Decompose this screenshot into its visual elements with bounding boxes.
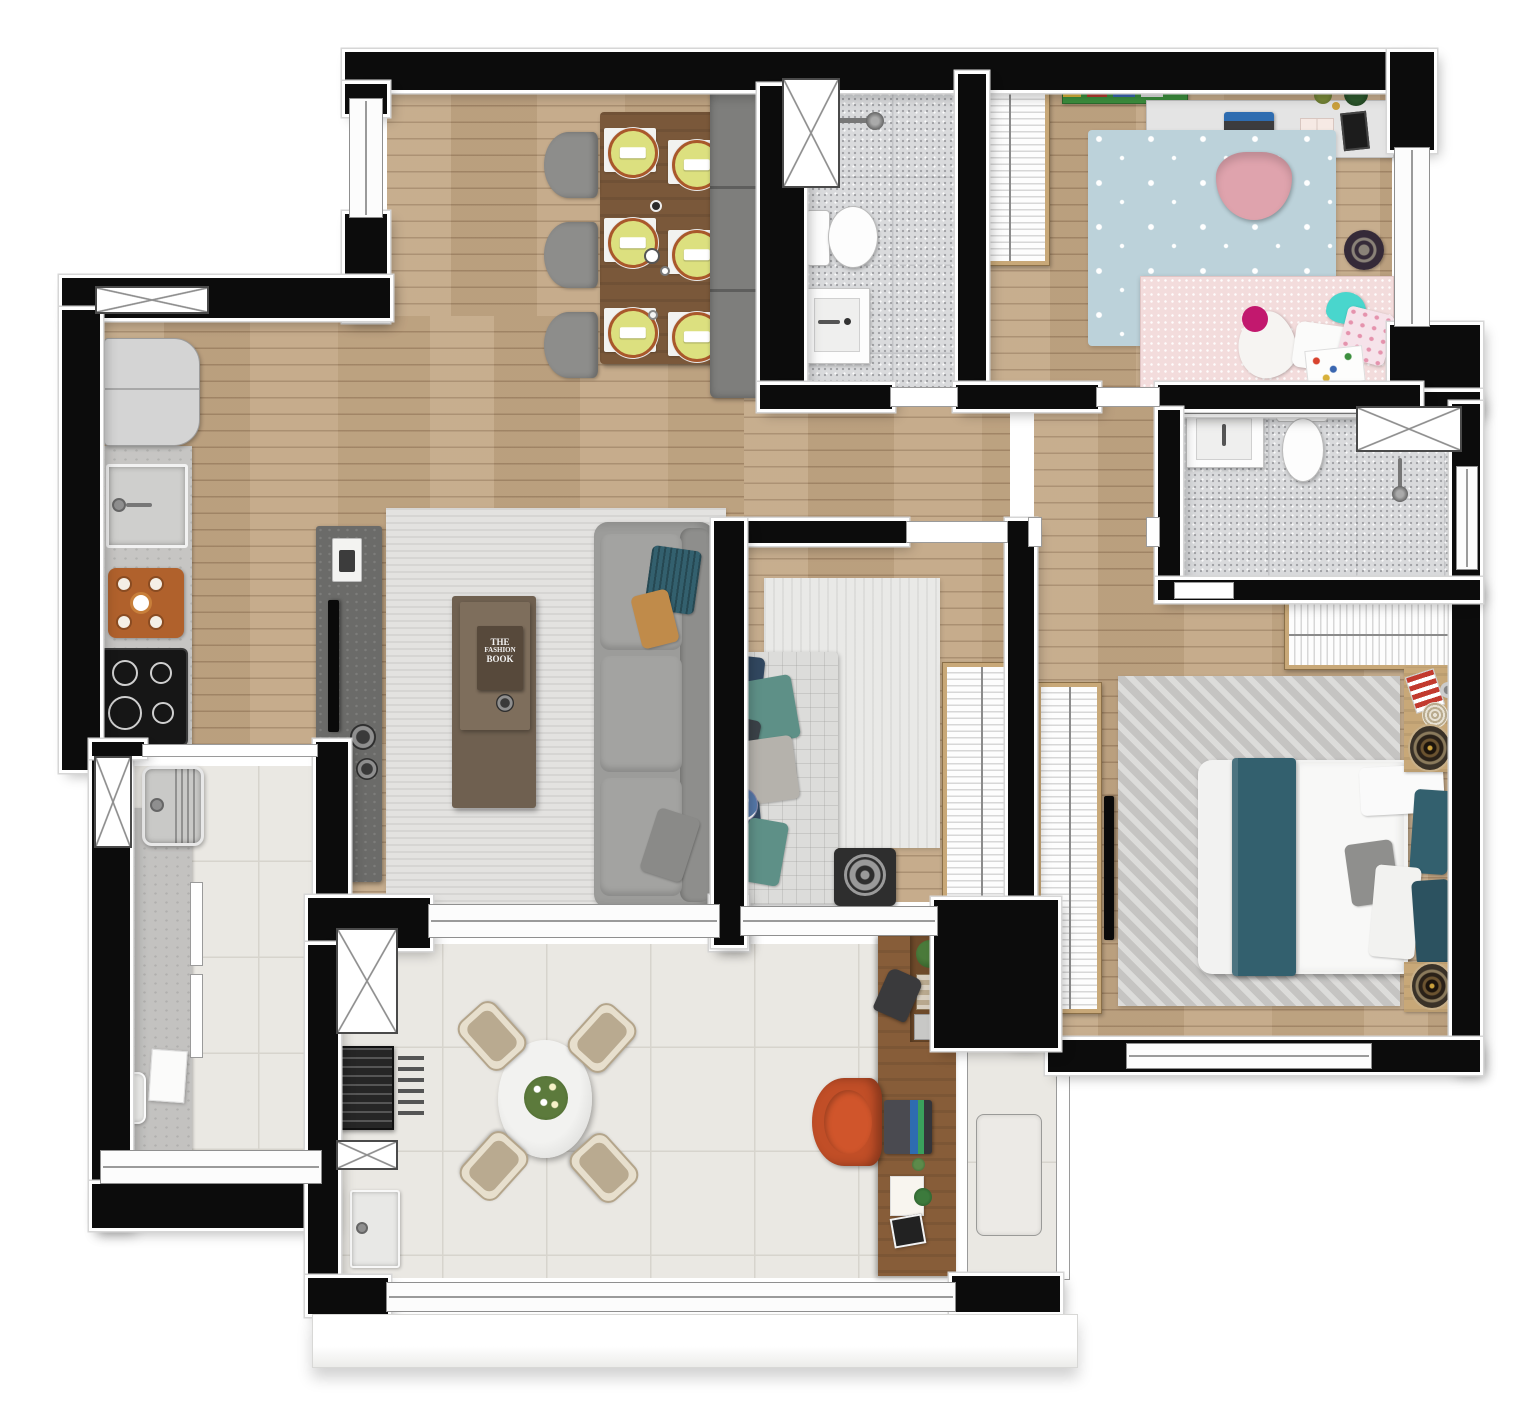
wall-middle-room-left xyxy=(714,521,744,945)
table-decor xyxy=(648,310,658,320)
board-item xyxy=(148,576,164,592)
middle-room-window xyxy=(740,906,938,936)
activity-mat xyxy=(1304,345,1365,387)
floor-plan: THE FASHION BOOK xyxy=(0,0,1536,1419)
burner xyxy=(108,696,142,730)
grill xyxy=(340,1046,394,1130)
desk-notebook xyxy=(890,1213,927,1248)
wardrobe-doors xyxy=(1289,603,1453,665)
wall-bath1-kids-divider xyxy=(958,74,986,388)
kitchen-faucet xyxy=(112,498,126,512)
coffee-cup xyxy=(496,694,514,712)
master-wardrobe-top xyxy=(1284,598,1458,670)
desk-laptop xyxy=(884,1100,932,1154)
bed-pillow-teal xyxy=(1411,879,1455,965)
tank-faucet xyxy=(150,798,164,812)
laundry-window xyxy=(100,1150,322,1184)
toilet-bowl xyxy=(828,206,878,268)
wardrobe-doors xyxy=(947,667,1015,903)
board-bowl xyxy=(130,592,152,614)
ac-ledge-wall-right xyxy=(1056,1046,1070,1280)
master-window xyxy=(1126,1043,1372,1069)
console-knob xyxy=(350,724,376,750)
shaft-x-icon xyxy=(336,928,398,1034)
wall-left xyxy=(62,310,100,770)
sink-drain xyxy=(844,318,851,325)
suite-sink-faucet xyxy=(1222,424,1226,446)
kitchen-laundry-opening xyxy=(142,744,318,757)
unicorn-mane xyxy=(1242,306,1268,332)
office-chair-seat xyxy=(824,1090,872,1154)
desk-plant-small xyxy=(912,1158,925,1171)
entry-door-opening xyxy=(349,98,383,218)
suite-shower-head-icon xyxy=(1398,458,1402,488)
table-decor xyxy=(650,200,662,212)
shaft-x-icon xyxy=(336,1140,398,1170)
table-decor xyxy=(644,248,660,264)
kids-room-door xyxy=(1096,387,1160,407)
board-item xyxy=(116,614,132,630)
wall-terrace-upper-left xyxy=(316,742,348,918)
suite-bathroom-door xyxy=(1174,582,1234,599)
burner xyxy=(112,660,138,686)
dining-chair xyxy=(544,312,598,378)
wall-block-bottom-right xyxy=(952,1276,1060,1312)
fridge xyxy=(104,338,200,446)
kids-room-window xyxy=(1394,147,1430,327)
burner xyxy=(150,662,172,684)
coffee-table-book: THE FASHION BOOK xyxy=(477,626,523,690)
bed-pillow-teal xyxy=(1409,789,1453,875)
suite-hall-floor xyxy=(1034,388,1160,600)
speaker xyxy=(1410,726,1450,770)
wall-middle-br-block xyxy=(934,900,1058,1048)
console-knob xyxy=(356,758,378,780)
suite-shower-head-icon xyxy=(1392,486,1408,502)
kids-blackboard xyxy=(1340,111,1370,152)
table-decor xyxy=(660,266,670,276)
table-flowers xyxy=(524,1076,568,1120)
suite-hall-frame xyxy=(1146,517,1160,547)
desk-plant-small xyxy=(914,1188,932,1206)
plate xyxy=(608,128,658,178)
dining-bench xyxy=(710,86,764,398)
cabinet-door xyxy=(190,974,203,1058)
kitchen-faucet-arm xyxy=(126,503,152,507)
book-title: THE FASHION BOOK xyxy=(477,638,523,664)
burner xyxy=(152,702,174,724)
speaker xyxy=(1412,964,1452,1008)
middle-room-door xyxy=(906,521,1008,543)
grill-tools xyxy=(398,1056,424,1122)
wall-hall-top-a xyxy=(760,385,892,409)
board-item xyxy=(148,614,164,630)
magazine-art xyxy=(339,550,355,572)
wall-laundry-bottom xyxy=(92,1184,332,1228)
terrace-railing xyxy=(386,1282,956,1312)
wall-suite-bath-left xyxy=(1158,410,1180,585)
sofa-cushion xyxy=(600,656,682,772)
bathroom1-door xyxy=(890,387,958,407)
towel xyxy=(148,1049,188,1103)
wheel-toy xyxy=(1344,230,1384,270)
sink-basin xyxy=(814,298,860,352)
wall-kitchen-laundry xyxy=(92,742,144,756)
living-terrace-sliding-door xyxy=(428,904,720,938)
dining-chair xyxy=(544,222,598,288)
balcony-slab xyxy=(312,1314,1078,1368)
tv-screen xyxy=(328,600,339,732)
board-item xyxy=(116,576,132,592)
bed-runner xyxy=(1232,758,1296,976)
suite-toilet-bowl xyxy=(1282,418,1324,482)
shaft-x-icon xyxy=(1356,406,1462,452)
suite-bath-window xyxy=(1456,466,1478,570)
suite-hall-frame xyxy=(1028,517,1042,547)
shower-head-icon xyxy=(866,112,884,130)
terrace-faucet xyxy=(356,1222,368,1234)
pouf-wheel-icon xyxy=(844,854,886,896)
wall-right-upper xyxy=(1390,52,1434,150)
cabinet-door xyxy=(190,882,203,966)
shaft-x-icon xyxy=(782,78,840,188)
sink-faucet xyxy=(818,320,840,324)
desk-dot xyxy=(1332,102,1340,110)
wall-block-bottom-left xyxy=(308,1278,388,1314)
shaft-x-icon xyxy=(94,756,132,848)
wall-hall-top-b xyxy=(956,385,1098,409)
ac-condenser-unit xyxy=(976,1114,1042,1236)
wall-terrace-left xyxy=(308,945,338,1292)
rattan-tray xyxy=(1422,702,1448,728)
master-wall-tv xyxy=(1104,796,1114,940)
dining-chair xyxy=(544,132,598,198)
wall-top xyxy=(345,52,1420,90)
toilet-tank xyxy=(806,210,830,266)
shaft-x-icon xyxy=(95,286,209,314)
